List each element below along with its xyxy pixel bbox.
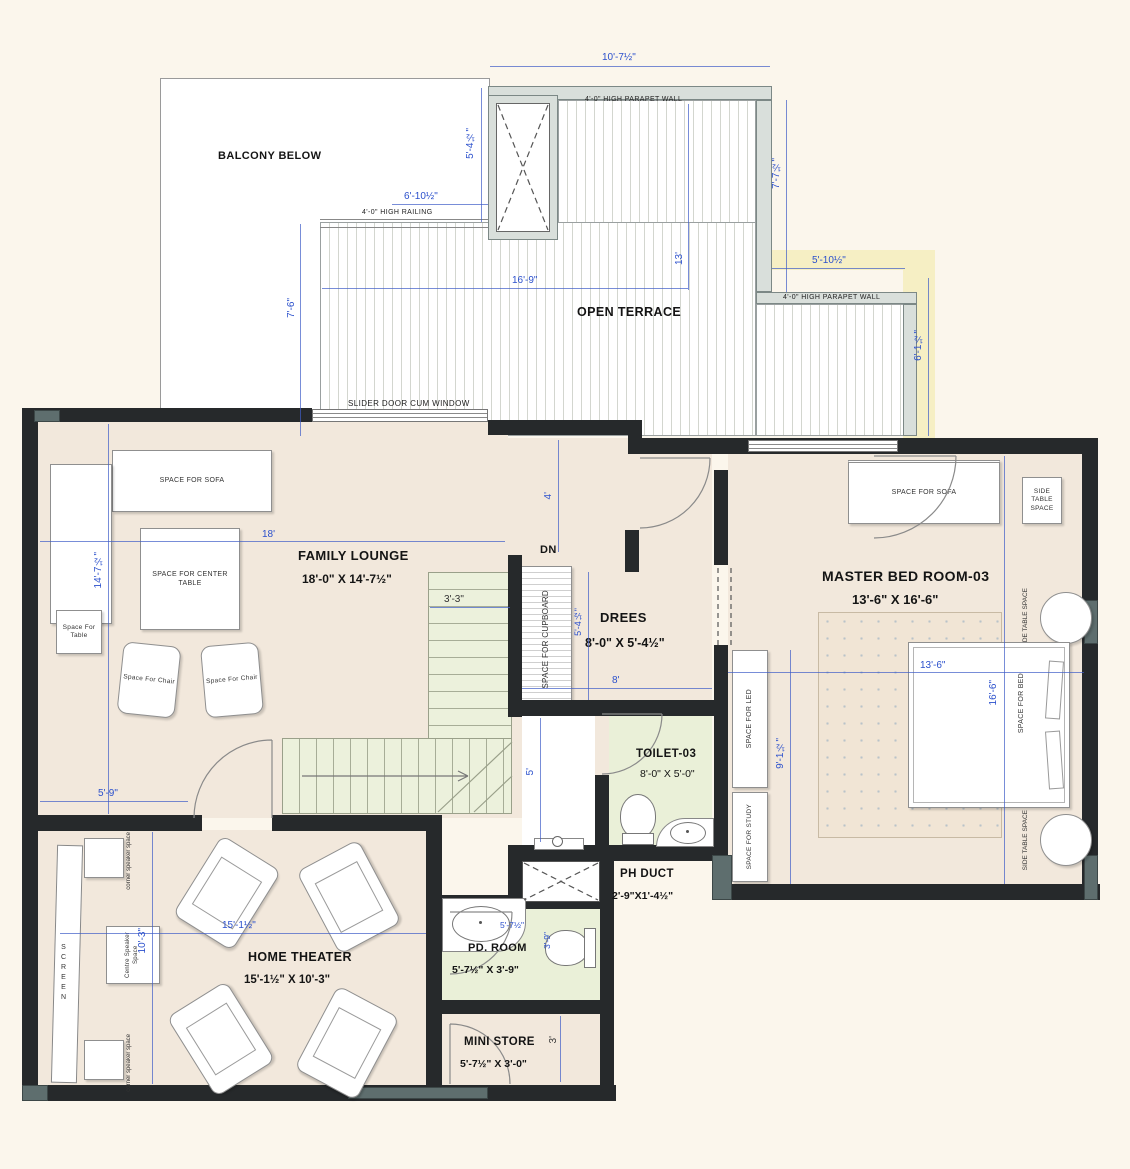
wall-cap <box>348 1087 488 1099</box>
master-size: 13'-6" X 16'-6" <box>852 592 938 607</box>
dim-theater-height: 10'-3" <box>137 928 148 953</box>
dim-pd-height: 3'-9" <box>542 932 552 949</box>
dim-line <box>40 541 505 542</box>
led-space: SPACE FOR LED <box>732 650 768 788</box>
wall <box>426 815 442 1101</box>
dim-line <box>560 1016 561 1082</box>
theater-size: 15'-1½" X 10'-3" <box>244 974 330 986</box>
led-label: SPACE FOR LED <box>745 689 754 748</box>
side-table-space: Space For Table <box>56 610 102 654</box>
dim-stair-width: 3'-3" <box>444 594 464 605</box>
study-space: SPACE FOR STUDY <box>732 792 768 882</box>
sofa-space: SPACE FOR SOFA <box>112 450 272 512</box>
dim-line <box>481 88 482 222</box>
cupboard-label: SPACE FOR CUPBOARD <box>541 590 551 689</box>
master-title: MASTER BED ROOM-03 <box>822 568 989 584</box>
bed-label: SPACE FOR BED <box>1017 673 1026 733</box>
dim-terrace-right-lower: 6'-1½" <box>913 330 924 361</box>
theater-title: HOME THEATER <box>248 950 352 964</box>
toilet-tank <box>622 833 654 845</box>
dim-line <box>786 100 787 292</box>
sink-drain <box>686 830 689 833</box>
sink <box>670 822 706 844</box>
master-sofa-space: SPACE FOR SOFA <box>848 460 1000 524</box>
wall <box>714 470 728 565</box>
wall <box>22 1085 616 1101</box>
slider-door-window <box>312 409 488 422</box>
dim-drees-width: 8' <box>612 675 619 686</box>
wall-cap <box>1084 855 1098 900</box>
chair-label: Space For Chair <box>123 673 175 687</box>
dim-line <box>108 424 109 814</box>
dim-line <box>430 607 510 608</box>
cupboard-space: SPACE FOR CUPBOARD <box>520 566 572 712</box>
corner-speaker-space <box>84 1040 124 1080</box>
wall <box>272 815 428 831</box>
sofa-label: SPACE FOR SOFA <box>160 476 225 485</box>
dim-lounge-width: 18' <box>262 529 275 540</box>
round-side-table <box>1040 814 1092 866</box>
study-label: SPACE FOR STUDY <box>746 804 754 869</box>
side-table-label: SIDE TABLE SPACE <box>1022 588 1029 648</box>
dim-master-height: 16'-6" <box>988 680 999 705</box>
corner-speaker-label: corner speaker space <box>126 1034 148 1092</box>
center-table-label: SPACE FOR CENTER TABLE <box>141 570 239 588</box>
wall-cap <box>712 855 732 900</box>
lobby-floor <box>522 716 595 845</box>
chair-label: Space For Chair <box>206 674 258 687</box>
wall <box>488 420 640 435</box>
wall <box>508 861 522 903</box>
dim-line <box>772 268 905 269</box>
lounge-size: 18'-0" X 14'-7½" <box>302 572 392 586</box>
wall <box>625 530 639 572</box>
dim-line <box>688 104 689 290</box>
center-table-space: SPACE FOR CENTER TABLE <box>140 528 240 630</box>
dim-ministore-height: 3' <box>548 1036 559 1043</box>
dim-line <box>490 66 770 67</box>
wall <box>22 815 202 831</box>
wall <box>22 408 38 1101</box>
dim-terrace-top: 10'-7½" <box>602 52 636 63</box>
staircase-upper-flight <box>428 572 512 740</box>
screen-label: SCREEN <box>60 944 67 1004</box>
dim-terrace-mid-width: 16'-9" <box>512 275 537 286</box>
dim-line <box>392 204 488 205</box>
master-window <box>748 440 898 452</box>
chair-space: Space For Chair <box>116 641 181 719</box>
side-table-space-box: SIDE TABLE SPACE <box>1022 477 1062 524</box>
dim-terrace-right-width: 5'-10½" <box>812 255 846 266</box>
dim-theater-width: 15'-1½" <box>222 920 256 931</box>
phduct-title: PH DUCT <box>620 868 674 880</box>
dim-terrace-right-upper: 7'-7½" <box>771 158 782 189</box>
pd-title: PD. ROOM <box>468 942 527 954</box>
master-sofa-label: SPACE FOR SOFA <box>892 488 957 497</box>
drees-title: DREES <box>600 610 647 625</box>
parapet-note-top: 4'-0" HIGH PARAPET WALL <box>585 96 682 103</box>
terrace-deck <box>756 304 905 436</box>
side-table-label: SIDE TABLE SPACE <box>1023 488 1061 513</box>
parapet-wall <box>756 100 772 292</box>
slider-label: SLIDER DOOR CUM WINDOW <box>348 399 470 408</box>
dim-line <box>60 933 426 934</box>
wash-tap <box>552 836 563 847</box>
dim-lounge-door: 5'-9" <box>98 788 118 799</box>
dim-drees-height: 5'-4½" <box>573 608 583 636</box>
dim-line <box>40 801 188 802</box>
corner-speaker-space <box>84 838 124 878</box>
wall <box>712 884 1100 900</box>
dim-line <box>728 672 1084 673</box>
terrace-deck <box>558 100 756 224</box>
ministore-title: MINI STORE <box>464 1036 535 1048</box>
dim-line <box>1004 456 1005 884</box>
terrace-railing <box>320 219 488 228</box>
wall <box>508 700 728 716</box>
parapet-note-right: 4'-0" HIGH PARAPET WALL <box>783 294 880 301</box>
pd-size: 5'-7½" X 3'-9" <box>452 964 519 976</box>
wall <box>436 1000 614 1014</box>
ph-duct-box <box>522 861 600 902</box>
dim-line <box>522 688 712 689</box>
toilet-bowl <box>620 794 656 838</box>
lounge-title: FAMILY LOUNGE <box>298 548 409 563</box>
dim-line <box>588 572 589 700</box>
dim-pd-width: 5'-7½" <box>500 920 524 930</box>
dim-line <box>928 278 929 436</box>
dim-terrace-mid-height: 13' <box>674 252 685 265</box>
pd-toilet-tank <box>584 928 596 968</box>
dim-line <box>152 832 153 1084</box>
sofa-space-side <box>50 464 112 624</box>
wall <box>508 555 522 717</box>
dim-terrace-left-lower: 7'-6" <box>286 298 297 318</box>
chair-space: Space For Chair <box>200 642 264 719</box>
wall <box>595 775 609 845</box>
wall-cap <box>34 410 60 422</box>
pd-sink-drain <box>479 921 482 924</box>
parapet-wall <box>903 304 917 436</box>
dim-hall: 4' <box>543 492 554 499</box>
dim-toilet-height: 5' <box>525 768 536 775</box>
ministore-floor <box>442 1014 600 1085</box>
wall <box>714 645 728 884</box>
terrace-title: OPEN TERRACE <box>577 305 681 319</box>
dim-master-width: 13'-6" <box>920 660 945 671</box>
dim-line <box>300 224 301 436</box>
corner-speaker-label: corner speaker space <box>126 832 148 890</box>
balcony-label: BALCONY BELOW <box>218 150 321 162</box>
dim-line <box>558 440 559 552</box>
dim-terrace-left-upper: 5'-4½" <box>465 128 476 159</box>
side-table-label: SIDE TABLE SPACE <box>1022 810 1029 870</box>
ministore-size: 5'-7½" X 3'-0" <box>460 1058 527 1070</box>
dim-railing: 6'-10½" <box>404 191 438 202</box>
dim-lounge-height: 14'-7½" <box>93 552 104 588</box>
floor-plan: BALCONY BELOW SPACE FOR CUPBOARD <box>0 0 1130 1169</box>
round-side-table <box>1040 592 1092 644</box>
dn-label: DN <box>540 544 557 556</box>
dim-master-inner: 9'-1½" <box>775 738 786 769</box>
railing-note: 4'-0" HIGH RAILING <box>362 209 433 216</box>
wall <box>22 408 312 422</box>
drees-size: 8'-0" X 5'-4½" <box>585 636 665 650</box>
toilet-size: 8'-0" X 5'-0" <box>640 768 695 780</box>
phduct-size: 2'-9"X1'-4½" <box>612 890 673 902</box>
staircase-lower-flight <box>282 738 512 814</box>
dim-line <box>540 718 541 842</box>
toilet-title: TOILET-03 <box>636 748 696 760</box>
dim-line <box>790 650 791 884</box>
side-table-label: Space For Table <box>57 624 101 641</box>
wall-cap <box>22 1085 48 1101</box>
dim-line <box>322 288 688 289</box>
shaft-box <box>496 103 550 232</box>
